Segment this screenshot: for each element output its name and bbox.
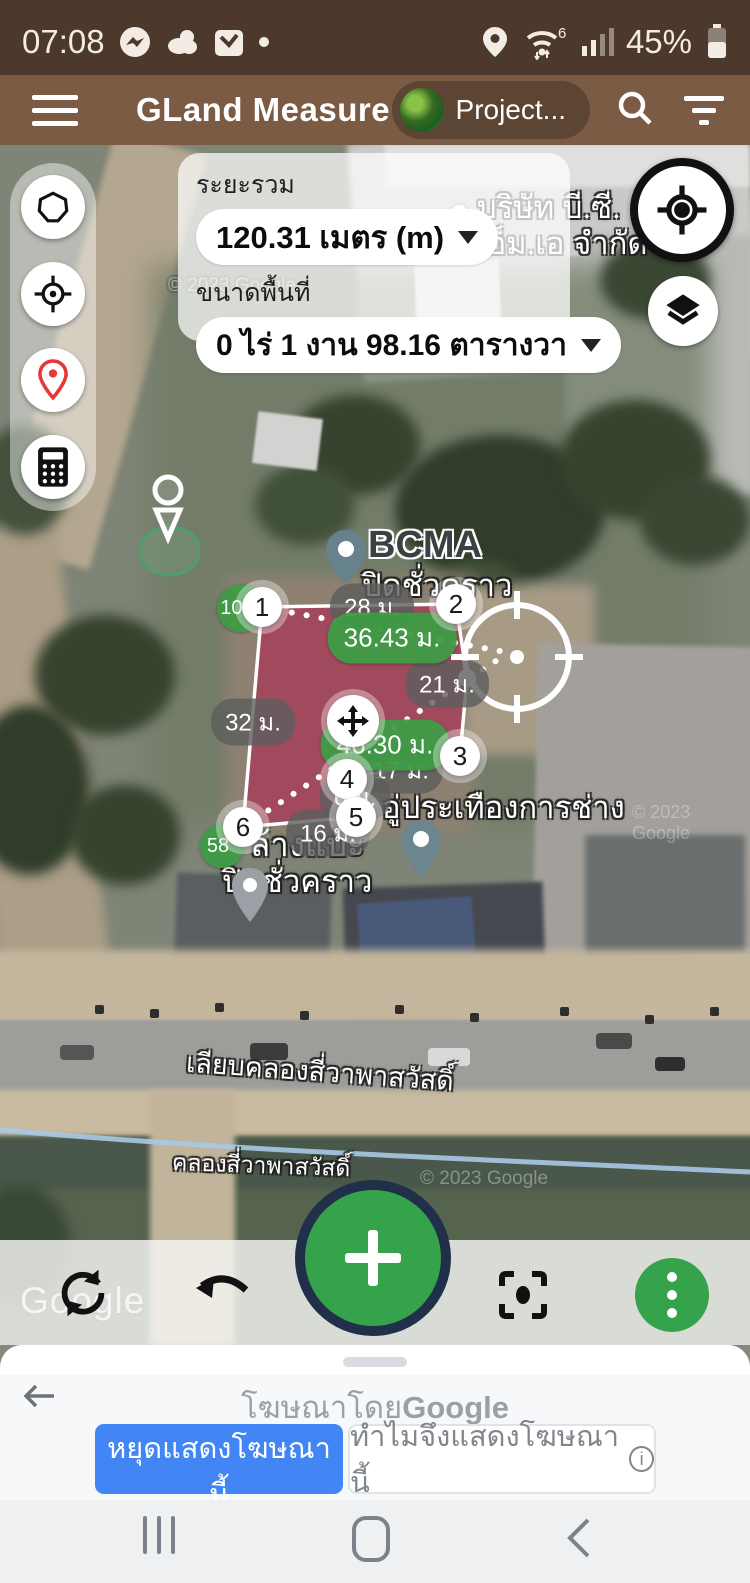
center-focus-button[interactable] bbox=[498, 1270, 548, 1325]
vertex-handle-6[interactable]: 6 bbox=[223, 807, 263, 847]
layers-icon bbox=[663, 291, 703, 331]
tool-rail bbox=[10, 163, 96, 511]
weather-cloud-icon bbox=[165, 27, 199, 57]
vertex-handle-5[interactable]: 5 bbox=[336, 797, 376, 837]
messenger-icon bbox=[119, 26, 151, 58]
project-location-marker[interactable] bbox=[136, 470, 200, 585]
chevron-down-icon bbox=[581, 339, 601, 352]
my-location-button[interactable] bbox=[630, 158, 734, 262]
home-nav-button[interactable] bbox=[352, 1516, 390, 1562]
polygon-icon bbox=[33, 187, 73, 227]
gray-map-pin[interactable] bbox=[229, 866, 271, 929]
imagery-credit: © 2023 Google bbox=[632, 802, 750, 844]
status-bar: 07:08 6 bbox=[0, 0, 750, 75]
live-measure-label: 36.43 ม. bbox=[328, 613, 457, 664]
polygon-tool-button[interactable] bbox=[21, 175, 85, 239]
garage-map-pin[interactable] bbox=[398, 818, 444, 885]
more-actions-button[interactable] bbox=[635, 1258, 709, 1332]
hamburger-menu-icon[interactable] bbox=[32, 95, 78, 126]
refresh-map-button[interactable] bbox=[52, 1262, 114, 1329]
chevron-down-icon bbox=[458, 231, 478, 244]
gps-target-icon bbox=[32, 273, 74, 315]
battery-percent: 45% bbox=[626, 23, 692, 61]
area-label: ขนาดพื้นที่ bbox=[196, 273, 552, 313]
calculator-icon bbox=[35, 446, 71, 488]
vertex-handle-2[interactable]: 2 bbox=[436, 584, 476, 624]
area-value-dropdown[interactable]: 0 ไร่ 1 งาน 98.16 ตารางวา bbox=[196, 317, 621, 373]
location-active-icon bbox=[482, 26, 508, 58]
arrows-move-icon bbox=[335, 703, 371, 739]
plus-icon bbox=[341, 1226, 405, 1290]
vertex-handle-4[interactable]: 4 bbox=[327, 759, 367, 799]
distance-value-dropdown[interactable]: 120.31 เมตร (m) bbox=[196, 209, 498, 265]
battery-icon bbox=[706, 24, 728, 60]
wifi6-icon: 6 bbox=[522, 24, 568, 60]
recents-nav-button[interactable] bbox=[143, 1516, 175, 1554]
app-bar: GLand Measure Project... bbox=[0, 75, 750, 145]
gland-measure-app: 07:08 6 bbox=[0, 0, 750, 1583]
project-avatar bbox=[400, 88, 444, 132]
app-title: GLand Measure bbox=[136, 91, 390, 129]
measurement-panel: ระยะรวม 120.31 เมตร (m) ขนาดพื้นที่ 0 ไร… bbox=[178, 153, 570, 341]
sync-icon bbox=[52, 1262, 114, 1324]
info-icon: i bbox=[629, 1446, 654, 1472]
vertex-handle-1[interactable]: 1 bbox=[242, 587, 282, 627]
undo-icon bbox=[192, 1264, 256, 1320]
stop-showing-ad-button[interactable]: หยุดแสดงโฆษณานี้ bbox=[95, 1424, 343, 1494]
imagery-credit: © 2023 Google bbox=[420, 1168, 548, 1190]
search-icon[interactable] bbox=[616, 89, 654, 132]
red-pin-icon bbox=[34, 358, 72, 402]
edge-distance-label: 32 ม. bbox=[211, 699, 295, 746]
filter-icon[interactable] bbox=[684, 96, 724, 125]
undo-button[interactable] bbox=[192, 1264, 256, 1325]
clock: 07:08 bbox=[22, 23, 105, 61]
why-this-ad-button[interactable]: ทำไมจึงแสดงโฆษณานี้ i bbox=[348, 1424, 656, 1494]
center-focus-icon bbox=[498, 1270, 548, 1320]
gps-target-tool-button[interactable] bbox=[21, 262, 85, 326]
map-layers-button[interactable] bbox=[648, 276, 718, 346]
calculator-tool-button[interactable] bbox=[21, 435, 85, 499]
drop-pin-tool-button[interactable] bbox=[21, 348, 85, 412]
sheet-drag-handle[interactable] bbox=[343, 1357, 407, 1367]
add-point-button[interactable] bbox=[305, 1190, 441, 1326]
project-button-label: Project... bbox=[456, 94, 566, 126]
back-nav-button[interactable] bbox=[562, 1516, 594, 1565]
mail-notification-icon bbox=[213, 26, 245, 58]
svg-text:6: 6 bbox=[558, 25, 566, 42]
more-notifications-dot bbox=[259, 37, 269, 47]
signal-bars-icon bbox=[582, 26, 616, 58]
canal-name-label: คลองสี่วาพาสวัสดิ์ bbox=[171, 1145, 351, 1187]
polygon-move-handle[interactable] bbox=[327, 695, 379, 747]
my-location-icon bbox=[654, 182, 710, 238]
edge-distance-label: 21 ม. bbox=[405, 661, 489, 708]
project-button[interactable]: Project... bbox=[392, 81, 590, 139]
back-chevron-icon bbox=[562, 1516, 594, 1560]
distance-label: ระยะรวม bbox=[196, 165, 552, 205]
vertex-handle-3[interactable]: 3 bbox=[440, 736, 480, 776]
